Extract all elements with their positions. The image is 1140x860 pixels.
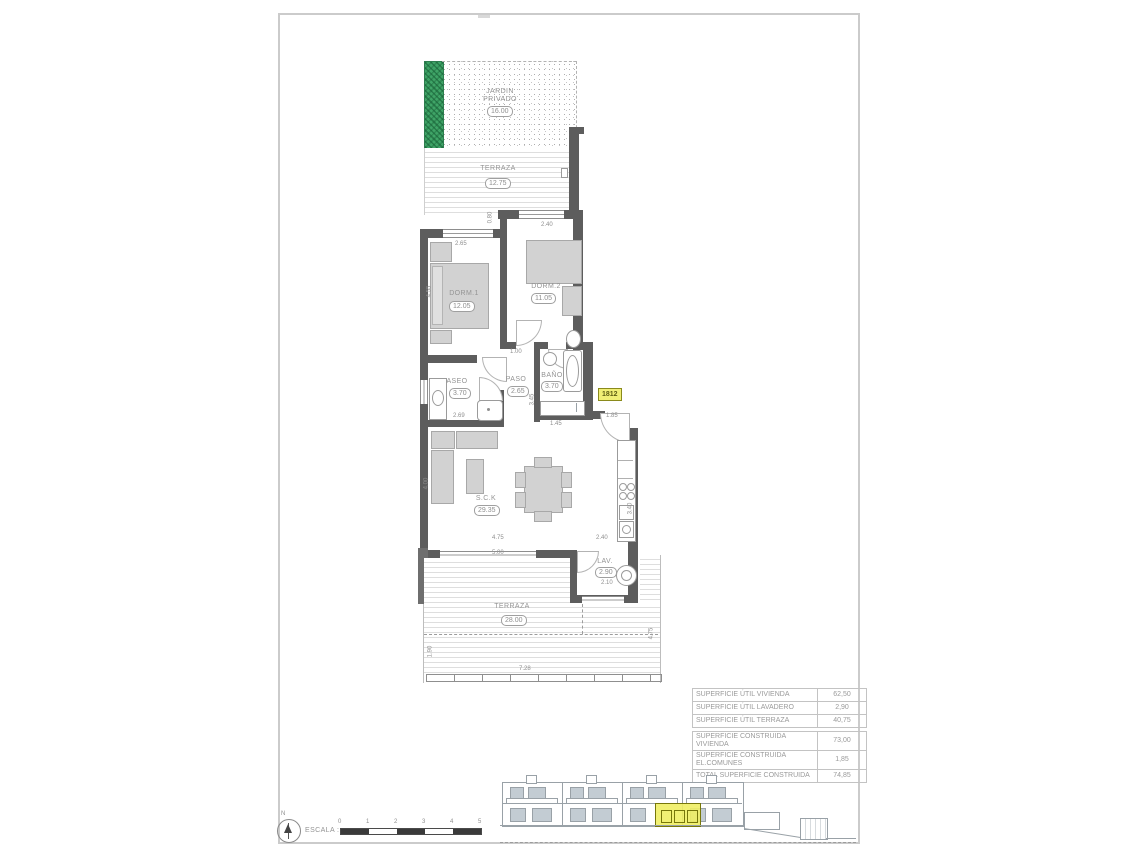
area-value: 2,90 — [818, 702, 867, 715]
room-label-dorm2: DORM.2 — [518, 283, 574, 290]
hob-burner — [627, 492, 635, 500]
dim: 1.85 — [606, 413, 618, 420]
garden-area-value: 16.00 — [487, 106, 513, 117]
window — [510, 808, 526, 822]
dim: 0.80 — [487, 212, 494, 224]
bed — [526, 240, 582, 284]
bathtub-basin — [566, 355, 579, 387]
window — [420, 380, 428, 404]
wardrobe — [562, 286, 582, 316]
dim: 3.40 — [627, 503, 634, 515]
dim: 2.69 — [453, 413, 465, 420]
dim: 5.00 — [492, 550, 504, 557]
dim: 1.00 — [510, 349, 522, 356]
hob-burner — [619, 483, 627, 491]
table-row: SUPERFICIE ÚTIL VIVIENDA 62,50 — [693, 689, 867, 702]
terrace-railing — [426, 674, 662, 682]
sink — [432, 390, 444, 406]
dim: 4.75 — [648, 628, 655, 640]
window — [630, 808, 646, 822]
bottom-terrace-label: TERRAZA — [482, 603, 542, 610]
area-value: 73,00 — [818, 732, 867, 751]
area-value: 40,75 — [818, 715, 867, 728]
area-label: SUPERFICIE ÚTIL VIVIENDA — [693, 689, 818, 702]
table-row: SUPERFICIE ÚTIL LAVADERO 2,90 — [693, 702, 867, 715]
chair — [534, 511, 552, 522]
building-elevation — [500, 770, 858, 848]
scale-segment — [453, 829, 481, 834]
dim: 2.65 — [455, 241, 467, 248]
nightstand — [430, 330, 452, 344]
party-wall — [622, 782, 623, 825]
dim: 2.40 — [596, 535, 608, 542]
room-area-sck: 29.35 — [474, 505, 500, 516]
annex — [744, 812, 780, 830]
room-area-bano: 3.70 — [541, 381, 563, 392]
wall — [420, 355, 477, 363]
area-label: SUPERFICIE ÚTIL LAVADERO — [693, 702, 818, 715]
window — [687, 810, 698, 823]
terrace-edge — [423, 604, 424, 683]
dim-lav-width: 2.10 — [601, 580, 613, 587]
room-label-aseo: ASEO — [437, 378, 477, 385]
window — [570, 808, 586, 822]
window — [661, 810, 672, 823]
scale-tick: 1 — [366, 819, 369, 826]
top-terrace-label: TERRAZA — [468, 165, 528, 172]
datum-dashed-line — [500, 842, 856, 843]
coffee-table — [466, 459, 484, 494]
room-area-dorm2: 11.05 — [531, 293, 556, 304]
bottom-terrace-deck — [640, 555, 660, 603]
bottom-terrace-deck — [424, 558, 570, 676]
private-garden-area — [442, 61, 577, 148]
nightstand — [430, 242, 452, 262]
scale-label: ESCALA : — [305, 827, 345, 834]
bottom-terrace-deck — [570, 603, 660, 676]
area-label: SUPERFICIE ÚTIL TERRAZA — [693, 715, 818, 728]
dim: 4.00 — [423, 478, 430, 490]
hob-burner — [627, 483, 635, 491]
scale-segment — [369, 829, 397, 834]
scale-segment — [397, 829, 425, 834]
north-compass-icon — [277, 819, 301, 843]
shower-tray — [477, 400, 503, 421]
chimney — [706, 775, 717, 784]
ground-line — [826, 838, 856, 839]
north-arrow-icon — [284, 824, 292, 833]
sofa — [456, 431, 498, 449]
hob-burner — [619, 492, 627, 500]
area-value: 1,85 — [818, 751, 867, 770]
wall — [420, 420, 504, 427]
room-label-paso: PASO — [496, 376, 536, 383]
sink — [543, 352, 557, 366]
dim: 1.90 — [427, 646, 434, 658]
useful-areas-table: SUPERFICIE ÚTIL VIVIENDA 62,50 SUPERFICI… — [692, 688, 867, 728]
wall — [500, 342, 516, 349]
window — [674, 810, 685, 823]
closet-door-line — [576, 403, 577, 412]
table-row: SUPERFICIE CONSTRUIDA VIVIENDA 73,00 — [693, 732, 867, 751]
wall — [570, 550, 577, 600]
north-label: N — [281, 811, 285, 818]
dining-table — [524, 466, 563, 513]
room-area-lav: 2.90 — [595, 567, 617, 578]
scale-tick: 5 — [478, 819, 481, 826]
room-area-paso: 2.65 — [507, 386, 529, 397]
window — [712, 808, 732, 822]
stair-structure — [800, 818, 828, 840]
scale-tick: 4 — [450, 819, 453, 826]
sink-bowl — [622, 525, 631, 534]
garden-label: JARDIN — [478, 88, 522, 95]
counter-divider — [618, 478, 633, 479]
window — [532, 808, 552, 822]
garden-label-2: PRIVADO — [478, 96, 522, 103]
top-terrace-area-value: 12.75 — [485, 178, 511, 189]
dim: 4.55 — [426, 286, 433, 298]
terrace-edge — [660, 555, 661, 683]
room-label-sck: S.C.K — [466, 495, 506, 502]
chimney — [586, 775, 597, 784]
ground-line — [500, 825, 744, 826]
table-row: SUPERFICIE ÚTIL TERRAZA 40,75 — [693, 715, 867, 728]
balcony-rail — [566, 798, 618, 804]
wall — [569, 127, 579, 218]
dim: 1.45 — [550, 421, 562, 428]
chair — [515, 492, 526, 508]
closet — [540, 401, 585, 416]
window — [519, 210, 564, 219]
scale-tick: 2 — [394, 819, 397, 826]
room-label-lav: LAV. — [585, 558, 625, 565]
scale-segment — [425, 829, 453, 834]
scale-bar — [340, 828, 482, 835]
scale-tick: 3 — [422, 819, 425, 826]
shower-drain — [487, 408, 490, 411]
dim: 2.40 — [541, 222, 553, 229]
chair — [561, 472, 572, 488]
drain-marker-icon — [561, 168, 568, 178]
chair — [515, 472, 526, 488]
overhang-dashed-line — [582, 604, 583, 634]
garden-hedge — [424, 61, 444, 149]
chair — [561, 492, 572, 508]
wall — [540, 342, 548, 349]
window — [592, 808, 612, 822]
washing-machine-drum — [621, 570, 632, 581]
balcony-rail — [506, 798, 558, 804]
counter-divider — [618, 460, 633, 461]
fold-mark — [478, 15, 490, 18]
bottom-terrace-area-value: 28.00 — [501, 615, 527, 626]
room-area-aseo: 3.70 — [449, 388, 471, 399]
armchair — [431, 431, 455, 449]
area-value: 62,50 — [818, 689, 867, 702]
overhang-dashed-line — [424, 634, 658, 635]
chimney — [526, 775, 537, 784]
room-label-dorm1: DORM.1 — [436, 290, 492, 297]
dim: 7.28 — [519, 666, 531, 673]
chimney — [646, 775, 657, 784]
table-row: SUPERFICIE CONSTRUIDA EL.COMUNES 1,85 — [693, 751, 867, 770]
scale-segment — [341, 829, 369, 834]
toilet — [566, 330, 581, 348]
party-wall — [562, 782, 563, 825]
area-label: SUPERFICIE CONSTRUIDA VIVIENDA — [693, 732, 818, 751]
dim: 3.45 — [529, 394, 536, 406]
window — [443, 229, 493, 238]
room-label-bano: BAÑO — [532, 372, 572, 379]
area-label: SUPERFICIE CONSTRUIDA EL.COMUNES — [693, 751, 818, 770]
dim: 4.75 — [492, 535, 504, 542]
scale-tick: 0 — [338, 819, 341, 826]
wall — [500, 219, 507, 346]
room-area-dorm1: 12.05 — [449, 301, 475, 312]
unit-number-badge: 1812 — [598, 388, 622, 401]
chair — [534, 457, 552, 468]
highlighted-unit — [655, 803, 701, 827]
sofa — [431, 450, 454, 504]
